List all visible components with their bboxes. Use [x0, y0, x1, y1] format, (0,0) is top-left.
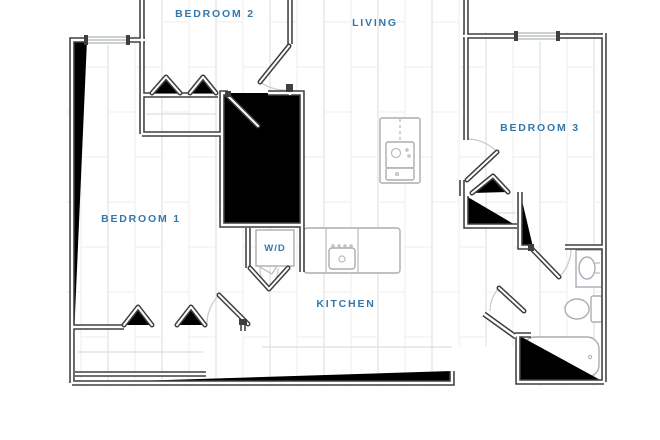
room-label-washer-dryer: W/D	[264, 243, 285, 254]
room-label-kitchen: KITCHEN	[316, 298, 375, 310]
room-label-living: LIVING	[352, 17, 398, 29]
window-icon	[84, 35, 130, 45]
kitchen-sink-icon	[304, 228, 400, 273]
floor-plan: BEDROOM 2 LIVING BEDROOM 3 BEDROOM 1 KIT…	[0, 0, 660, 440]
kitchen-island-icon	[380, 118, 420, 183]
sink-vanity-icon	[576, 250, 602, 287]
toilet-icon	[565, 296, 602, 322]
room-label-bedroom-1: BEDROOM 1	[101, 213, 181, 225]
room-label-bedroom-2: BEDROOM 2	[175, 8, 255, 20]
window-icon	[514, 31, 560, 41]
floor-plan-page: BEDROOM 2 LIVING BEDROOM 3 BEDROOM 1 KIT…	[0, 0, 660, 440]
room-label-bedroom-3: BEDROOM 3	[500, 122, 580, 134]
